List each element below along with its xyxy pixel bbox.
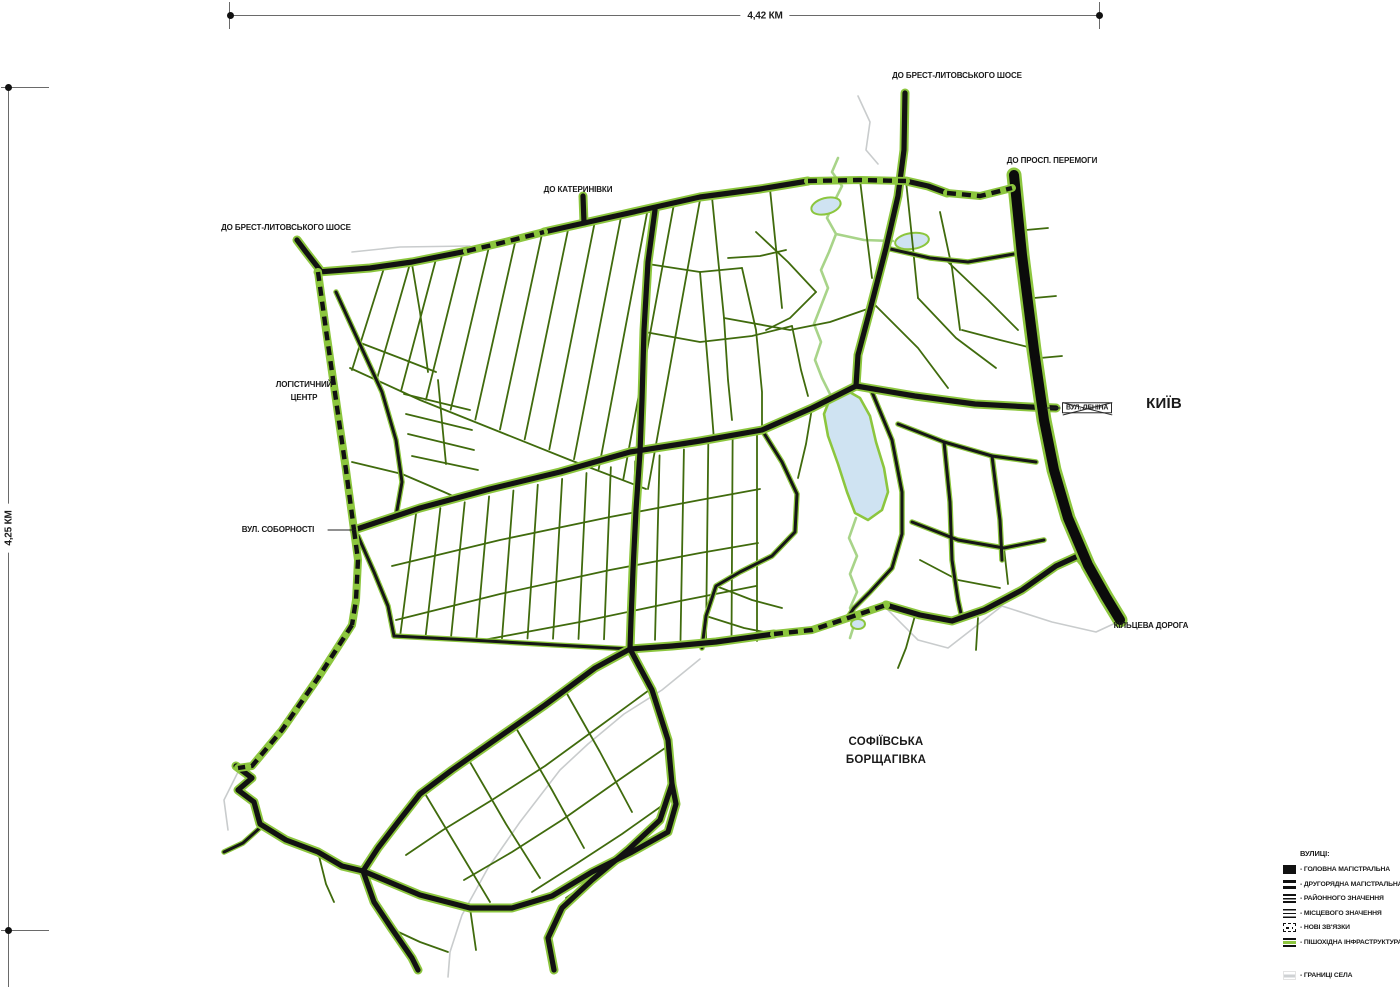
local-road bbox=[352, 268, 384, 370]
main-road bbox=[236, 766, 363, 871]
local-road bbox=[700, 272, 714, 440]
secondary-road bbox=[394, 636, 630, 649]
scale-dot bbox=[5, 927, 12, 934]
label-sobornosti-street: ВУЛ. СОБОРНОСТІ bbox=[242, 524, 315, 536]
local-road bbox=[553, 479, 562, 639]
local-road bbox=[962, 330, 1032, 348]
local-road bbox=[549, 223, 594, 450]
label-lenina-street-crossed-out: ВУЛ. ЛЕНІНА bbox=[1062, 402, 1112, 413]
local-road bbox=[604, 467, 611, 639]
main-road bbox=[583, 196, 584, 223]
secondary-road bbox=[898, 424, 1036, 462]
legend-label: - ДРУГОРЯДНА МАГІСТРАЛЬНА bbox=[1300, 881, 1400, 888]
main-road bbox=[363, 649, 630, 871]
local-road bbox=[655, 455, 660, 639]
scale-value-left: 4,25 КМ bbox=[4, 503, 15, 552]
local-road bbox=[976, 618, 978, 650]
local-road bbox=[408, 434, 474, 450]
new-links-road bbox=[238, 625, 352, 768]
label-kyiv: КИЇВ bbox=[1146, 398, 1182, 410]
scale-line-top bbox=[230, 15, 1100, 16]
secondary-road-swatch-icon bbox=[1283, 880, 1296, 889]
main-road bbox=[297, 240, 320, 270]
label-to-brest-lytovske-shose-north: ДО БРЕСТ-ЛИТОВСЬКОГО ШОСЕ bbox=[892, 70, 1022, 82]
ring-road bbox=[1014, 175, 1120, 620]
local-road bbox=[525, 228, 569, 439]
local-road bbox=[716, 586, 782, 608]
legend-label: - НОВІ ЗВ'ЯЗКИ bbox=[1300, 924, 1350, 931]
map-page: 4,42 КМ 4,25 КМ ДО БРЕСТ-ЛИТОВСЬКОГО ШОС… bbox=[0, 0, 1400, 987]
legend-item: - ПІШОХІДНА ІНФРАСТРУКТУРА bbox=[1283, 938, 1400, 947]
local-road bbox=[898, 612, 916, 668]
local-road bbox=[470, 762, 540, 878]
local-road bbox=[451, 502, 465, 637]
local-road bbox=[528, 485, 538, 639]
local-road bbox=[712, 197, 732, 420]
border-road-swatch-icon bbox=[1283, 971, 1296, 980]
local-road-swatch-icon bbox=[1283, 909, 1296, 918]
local-road bbox=[574, 217, 621, 459]
local-road bbox=[424, 792, 490, 902]
map-canvas bbox=[0, 0, 1400, 987]
secondary-road bbox=[224, 826, 262, 852]
local-road bbox=[377, 262, 411, 380]
local-road bbox=[475, 240, 515, 420]
label-to-katerynivka: ДО КАТЕРИНІВКИ bbox=[544, 184, 613, 196]
pond bbox=[851, 619, 865, 629]
scale-value-top: 4,42 КМ bbox=[740, 11, 789, 22]
legend-item: - НОВІ ЗВ'ЯЗКИ bbox=[1283, 923, 1400, 932]
boundary-road bbox=[224, 772, 238, 830]
local-road bbox=[477, 496, 490, 637]
local-road bbox=[860, 180, 872, 278]
ped-road-swatch-icon bbox=[1283, 938, 1296, 947]
local-road bbox=[756, 232, 816, 292]
legend-item: - ГОЛОВНА МАГІСТРАЛЬНА bbox=[1283, 865, 1400, 874]
legend-label: - ГОЛОВНА МАГІСТРАЛЬНА bbox=[1300, 866, 1390, 873]
district-road-swatch-icon bbox=[1283, 894, 1296, 903]
layer-main bbox=[236, 93, 1094, 970]
secondary-road bbox=[912, 522, 1044, 548]
main-road bbox=[363, 649, 630, 871]
legend-item: - РАЙОННОГО ЗНАЧЕННЯ bbox=[1283, 894, 1400, 903]
local-road bbox=[1034, 296, 1056, 298]
local-road bbox=[500, 234, 542, 430]
label-sofiivska-borshchahivka: СОФІЇВСЬКА БОРЩАГІВКА bbox=[846, 733, 926, 769]
scale-dot bbox=[227, 12, 234, 19]
layer-ring bbox=[1014, 175, 1120, 620]
legend: ВУЛИЦІ: - ГОЛОВНА МАГІСТРАЛЬНА- ДРУГОРЯД… bbox=[1283, 849, 1400, 985]
local-road bbox=[798, 408, 812, 478]
label-to-brest-lytovske-shose-west: ДО БРЕСТ-ЛИТОВСЬКОГО ШОСЕ bbox=[221, 222, 351, 234]
local-road bbox=[920, 560, 1000, 588]
legend-items: - ГОЛОВНА МАГІСТРАЛЬНА- ДРУГОРЯДНА МАГІС… bbox=[1283, 865, 1400, 980]
local-road bbox=[1040, 356, 1062, 358]
local-road bbox=[470, 908, 476, 950]
local-road bbox=[766, 292, 816, 330]
legend-label: - РАЙОННОГО ЗНАЧЕННЯ bbox=[1300, 895, 1384, 902]
scale-dot bbox=[5, 84, 12, 91]
scale-dot bbox=[1096, 12, 1103, 19]
local-road bbox=[352, 462, 462, 500]
legend-item: - ГРАНИЦІ СЕЛА bbox=[1283, 971, 1400, 980]
local-road bbox=[502, 491, 513, 639]
legend-label: - ПІШОХІДНА ІНФРАСТРУКТУРА bbox=[1300, 939, 1400, 946]
local-road bbox=[579, 473, 587, 639]
legend-title: ВУЛИЦІ: bbox=[1300, 849, 1400, 858]
local-road bbox=[872, 302, 948, 388]
local-road bbox=[724, 306, 876, 330]
local-road bbox=[792, 326, 808, 396]
boundary-road bbox=[858, 96, 878, 164]
label-to-prospekt-peremohy: ДО ПРОСП. ПЕРЕМОГИ bbox=[1007, 155, 1097, 167]
legend-item: - ДРУГОРЯДНА МАГІСТРАЛЬНА bbox=[1283, 880, 1400, 889]
local-road bbox=[426, 508, 441, 637]
new-road-swatch-icon bbox=[1283, 923, 1296, 932]
local-road bbox=[681, 450, 684, 641]
local-road bbox=[400, 514, 416, 637]
legend-label: - ГРАНИЦІ СЕЛА bbox=[1300, 972, 1352, 979]
local-road bbox=[1026, 228, 1048, 230]
pond bbox=[809, 194, 842, 217]
new-links-road bbox=[774, 605, 886, 634]
local-road bbox=[742, 268, 762, 430]
label-ring-road: КІЛЬЦЕВА ДОРОГА bbox=[1114, 620, 1189, 632]
legend-label: - МІСЦЕВОГО ЗНАЧЕННЯ bbox=[1300, 910, 1382, 917]
main-road bbox=[630, 649, 672, 784]
local-road bbox=[396, 543, 758, 620]
ring-road bbox=[1014, 175, 1120, 620]
label-logistics-center: ЛОГІСТИЧНИЙ ЦЕНТР bbox=[276, 378, 333, 404]
local-road bbox=[770, 189, 782, 308]
local-road bbox=[1004, 548, 1008, 584]
local-road bbox=[732, 438, 733, 641]
secondary-road bbox=[702, 430, 797, 648]
stream-road bbox=[814, 158, 842, 394]
legend-item: - МІСЦЕВОГО ЗНАЧЕННЯ bbox=[1283, 909, 1400, 918]
main-road-swatch-icon bbox=[1283, 865, 1296, 874]
